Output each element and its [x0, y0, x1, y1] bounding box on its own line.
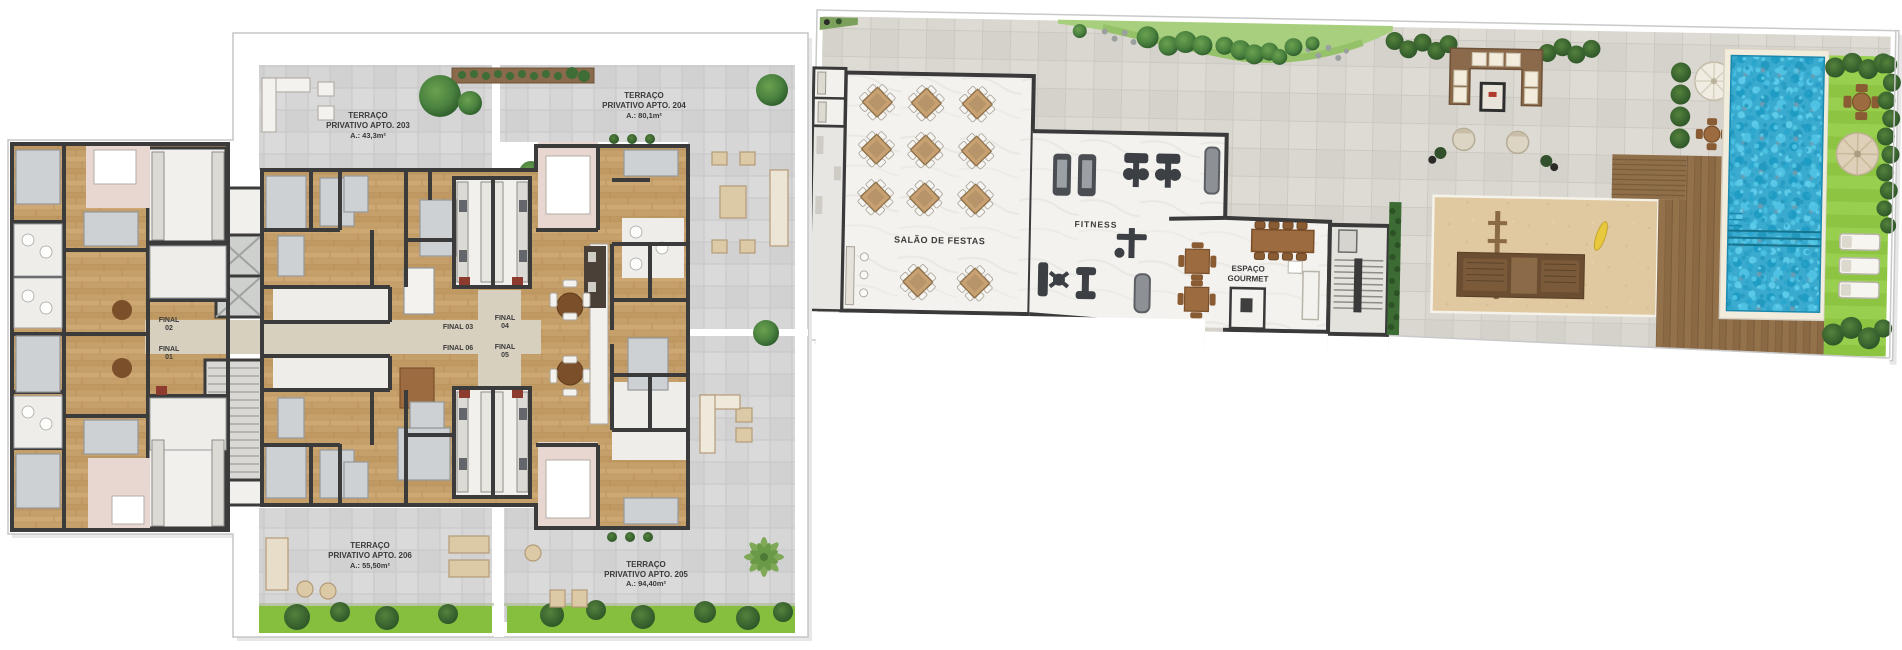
- svg-text:FINAL: FINAL: [495, 344, 516, 351]
- svg-text:FINAL 06: FINAL 06: [443, 345, 473, 352]
- svg-text:04: 04: [501, 323, 509, 330]
- svg-text:TERRAÇO: TERRAÇO: [348, 111, 388, 120]
- svg-text:FINAL: FINAL: [159, 346, 180, 353]
- svg-text:FINAL 03: FINAL 03: [443, 324, 473, 331]
- svg-text:GOURMET: GOURMET: [1227, 274, 1268, 284]
- svg-text:PRIVATIVO APTO. 203: PRIVATIVO APTO. 203: [326, 121, 410, 130]
- svg-text:A.: 80,1m²: A.: 80,1m²: [626, 111, 662, 120]
- svg-text:PRIVATIVO APTO. 206: PRIVATIVO APTO. 206: [328, 551, 412, 560]
- svg-text:TERRAÇO: TERRAÇO: [626, 560, 666, 569]
- svg-text:SALÃO DE FESTAS: SALÃO DE FESTAS: [894, 234, 986, 246]
- svg-text:FINAL: FINAL: [495, 315, 516, 322]
- svg-text:TERRAÇO: TERRAÇO: [350, 541, 390, 550]
- svg-text:FITNESS: FITNESS: [1074, 219, 1117, 230]
- svg-text:A.: 94,40m²: A.: 94,40m²: [626, 579, 667, 588]
- svg-text:02: 02: [165, 325, 173, 332]
- svg-text:A.: 43,3m²: A.: 43,3m²: [350, 131, 386, 140]
- svg-text:05: 05: [501, 352, 509, 359]
- svg-text:TERRAÇO: TERRAÇO: [624, 91, 664, 100]
- svg-text:01: 01: [165, 354, 173, 361]
- svg-text:ESPAÇO: ESPAÇO: [1231, 264, 1264, 274]
- svg-text:FINAL: FINAL: [159, 317, 180, 324]
- svg-text:PRIVATIVO APTO. 204: PRIVATIVO APTO. 204: [602, 101, 686, 110]
- svg-text:PRIVATIVO APTO. 205: PRIVATIVO APTO. 205: [604, 570, 688, 579]
- svg-text:A.: 55,50m²: A.: 55,50m²: [350, 561, 391, 570]
